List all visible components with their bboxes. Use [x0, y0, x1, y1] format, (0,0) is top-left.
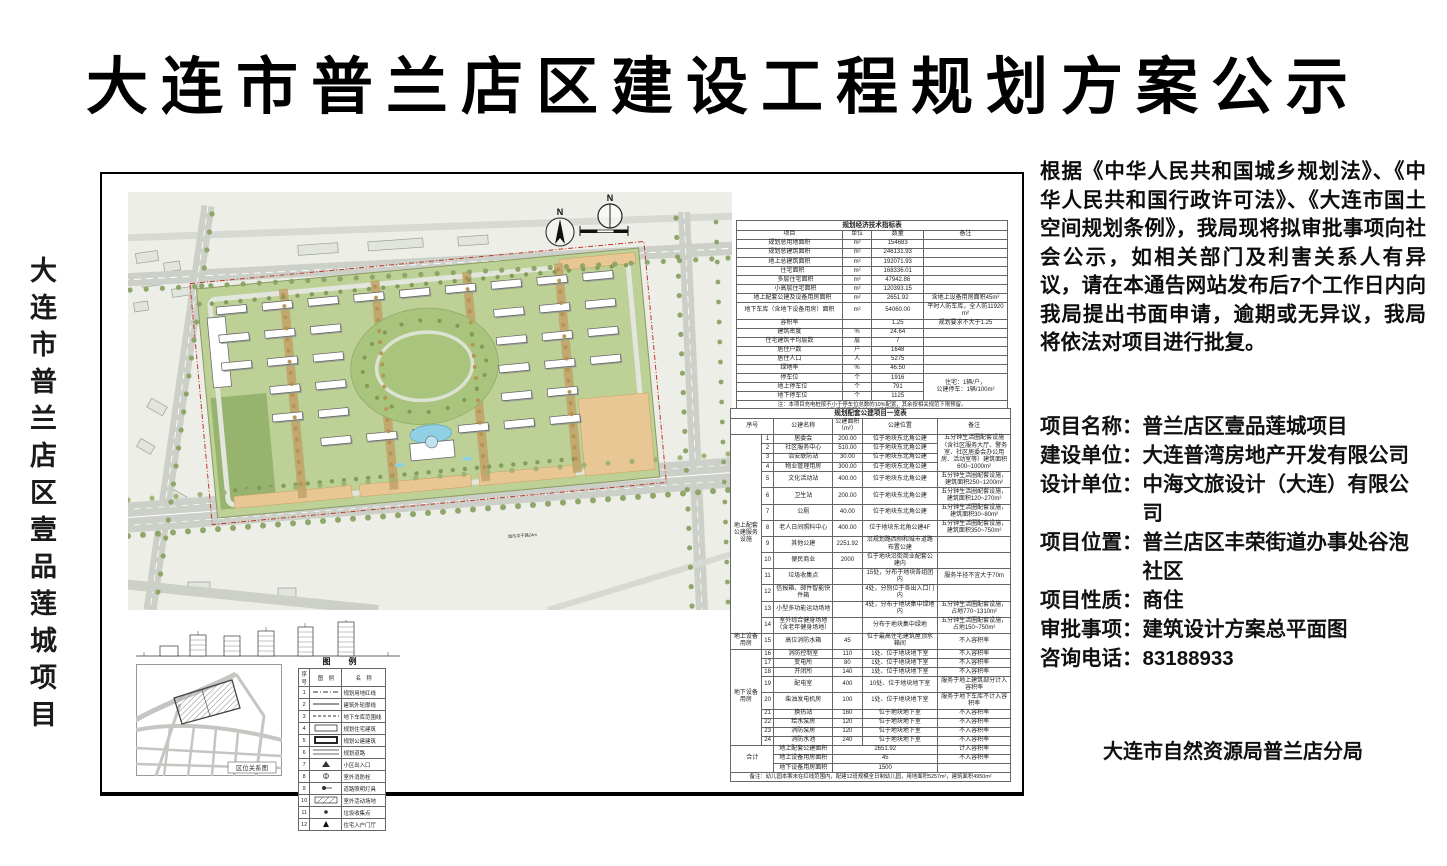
table-row: 23消防泵房120位于地块地下室不入容积率 [731, 727, 1011, 736]
north-label-2: N [557, 207, 564, 217]
table-note-row: 备注：幼儿园本案未在红线范围内，配建12班规模全日制幼儿园，用地面积5257m²… [731, 773, 1011, 781]
legend: 图 例 序号图 例名 称1规划用地红线2建筑外轮廓线3地下车库范围线4规划住宅建… [298, 656, 386, 831]
table-row: 11垃圾收集点15处，分布于地块各组团内服务半径不宜大于70m [731, 569, 1011, 585]
field-value: 83188933 [1143, 644, 1427, 673]
table-row: 6卫生站200.00位于地块东北角公建五分钟生活圈配套设施，建筑面积120~27… [731, 488, 1011, 504]
solid-symbol-icon [310, 699, 342, 711]
project-field-5: 审批事项：建筑设计方案总平面图 [1040, 615, 1426, 644]
legend-row: 10室外活动场地 [299, 795, 386, 807]
table-row: 地下设备用房16消防控制室1101处、位于地块地下室不入容积率 [731, 650, 1011, 659]
drawing-frame: N N 城市次干路24m [100, 172, 1024, 796]
project-side-label: 大连市普兰店区壹品莲城项目 [22, 256, 61, 737]
table-row: 20柴油发电机房1001处、位于地块地下室服务于地下车库不计入容积率 [731, 693, 1011, 709]
table-row: 居住人口人5275 [737, 355, 1008, 364]
table-row: 22给水泵房120位于地块地下室不入容积率 [731, 718, 1011, 727]
project-field-4: 项目性质：商住 [1040, 586, 1426, 615]
field-label: 设计单位： [1040, 470, 1143, 528]
road-symbol-icon [310, 747, 342, 759]
legend-row: 2建筑外轮廓线 [299, 699, 386, 711]
hatch-symbol-icon [310, 795, 342, 807]
notice-poster: 大连市普兰店区建设工程规划方案公示 大连市普兰店区壹品莲城项目 [0, 0, 1447, 866]
field-label: 项目名称： [1040, 412, 1143, 441]
table-row: 5文化活动站400.00位于地块东北角公建五分钟生活圈配套设施，建筑面积250~… [731, 472, 1011, 488]
legend-row: 5规划公建建筑 [299, 735, 386, 747]
table-row: 19配电室40010处、位于地块地下室服务于地上建筑部分计入容积率 [731, 677, 1011, 693]
table-row: 规划总用地面积m²154683 [737, 239, 1008, 248]
field-value: 中海文旅设计（大连）有限公司 [1143, 470, 1427, 528]
project-field-2: 设计单位：中海文旅设计（大连）有限公司 [1040, 470, 1426, 528]
table-row: 7公厕40.00位于地块东北角公建五分钟生活圈配套设施，建筑面积30~80m² [731, 504, 1011, 520]
table-total-row: 合计地上配套公建面积2651.92计入容积率 [731, 745, 1011, 754]
table-row: 8老人日间照料中心400.00位于地块东北角公建4F五分钟生活圈配套设施，建筑面… [731, 520, 1011, 536]
table-row: 24消防水池240位于地块地下室不入容积率 [731, 736, 1011, 745]
field-value: 普兰店区丰荣街道办事处谷泡社区 [1143, 528, 1427, 586]
map-caption: 区位关系图 [236, 763, 268, 772]
table-row: 地下车库（含地下设备用房）面积m²54060.00平时人防车库，全人防11920… [737, 303, 1008, 319]
legend-row: 4规划住宅建筑 [299, 723, 386, 735]
lamp-symbol-icon [310, 783, 342, 795]
table-row: 地上配套公建服务设施1居委会200.00位于地块东北角公建五分钟生活圈配套设施（… [731, 434, 1011, 443]
indicators-table: 规划经济技术指标表项目单位数量备注规划总用地面积m²154683规划总建筑面积m… [736, 220, 1008, 416]
dashdot-symbol-icon [310, 687, 342, 699]
table-header-row: 项目单位数量备注 [737, 230, 1008, 239]
field-label: 咨询电话： [1040, 644, 1143, 673]
section-buildings [160, 622, 354, 656]
table-title-row: 规划经济技术指标表 [737, 221, 1008, 231]
table-row: 10便民商业2000位于地块沿街商业配套公建内 [731, 553, 1011, 569]
res-symbol-icon [310, 723, 342, 735]
legend-row: 12住宅入户门厅 [299, 819, 386, 831]
field-label: 审批事项： [1040, 615, 1143, 644]
table-row: 地上总建筑面积m²192071.93 [737, 258, 1008, 267]
north-label: N [607, 193, 614, 203]
table-row: 14室外综合健身场地（含老年健身场地）分布于地块集中绿地五分钟生活圈配套设施，占… [731, 617, 1011, 633]
dot-symbol-icon [310, 807, 342, 819]
notice-paragraph: 根据《中华人民共和国城乡规划法》、《中华人民共和国行政许可法》、《大连市国土空间… [1040, 158, 1426, 358]
site-plan: N N 城市次干路24m [128, 192, 732, 610]
field-label: 项目位置： [1040, 528, 1143, 586]
project-field-0: 项目名称：普兰店区壹品莲城项目 [1040, 412, 1426, 441]
project-field-3: 项目位置：普兰店区丰荣街道办事处谷泡社区 [1040, 528, 1426, 586]
table-row: 17变电所801处、位于地块地下室不入容积率 [731, 659, 1011, 668]
project-field-1: 建设单位：大连普湾房地产开发有限公司 [1040, 441, 1426, 470]
entry-symbol-icon [310, 819, 342, 831]
legend-title: 图 例 [298, 656, 386, 667]
legend-row: 11垃圾收集点 [299, 807, 386, 819]
facilities-table: 规划配套公建项目一览表序号公建名称公建面积（m²）公建位置备注地上配套公建服务设… [730, 408, 1011, 782]
table-row: 18开闭所1401处、位于地块地下室不入容积率 [731, 668, 1011, 677]
field-label: 建设单位： [1040, 441, 1143, 470]
table-row: 21换热站160位于地块地下室不入容积率 [731, 709, 1011, 718]
table-row: 多层住宅面积m²47942.86 [737, 276, 1008, 285]
table-row: 9其他公建2251.92沿规划路西侧和城市道路布置公建 [731, 536, 1011, 552]
project-field-6: 咨询电话：83188933 [1040, 644, 1426, 673]
table-row: 住宅建筑平均层数层7 [737, 337, 1008, 346]
table-row: 地上配套公建及设备用房面积m²2651.92含地上设备用房面积45m² [737, 294, 1008, 303]
legend-row: 9道路照明灯具 [299, 783, 386, 795]
legend-row: 8室外消防栓 [299, 771, 386, 783]
page-title: 大连市普兰店区建设工程规划方案公示 [0, 36, 1447, 126]
table-row: 13小型多功能运动场地4处，分布于地块集中绿地内五分钟生活圈配套设施，占地770… [731, 601, 1011, 617]
table-row: 地上设备用房15高位消防水箱45位于最高住宅建筑屋顶水箱间不入容积率 [731, 633, 1011, 649]
authority-line: 大连市自然资源局普兰店分局 [1040, 735, 1426, 764]
arrow-symbol-icon [310, 759, 342, 771]
field-value: 商住 [1143, 586, 1427, 615]
legend-row: 6规划道路 [299, 747, 386, 759]
legend-row: 3地下车库范围线 [299, 711, 386, 723]
field-value: 大连普湾房地产开发有限公司 [1143, 441, 1427, 470]
table-row: 12信报箱、邮件智能快件箱4处，分别位于各出入口门内 [731, 585, 1011, 601]
table-row: 小高层住宅面积m²120393.15 [737, 285, 1008, 294]
dash-symbol-icon [310, 711, 342, 723]
table-row: 绿地率%46.50 [737, 364, 1008, 373]
legend-header-row: 序号图 例名 称 [299, 669, 386, 687]
legend-row: 1规划用地红线 [299, 687, 386, 699]
table-row: 规划总建筑面积m²246131.93 [737, 248, 1008, 257]
table-row: 容积率1.25规划要求不大于1.25 [737, 319, 1008, 328]
table-row: 住宅面积m²168336.01 [737, 267, 1008, 276]
table-row: 建筑密度%24.64 [737, 328, 1008, 337]
pub-symbol-icon [310, 735, 342, 747]
hydrant-symbol-icon [310, 771, 342, 783]
legend-table: 序号图 例名 称1规划用地红线2建筑外轮廓线3地下车库范围线4规划住宅建筑5规划… [298, 668, 386, 831]
field-value: 建筑设计方案总平面图 [1143, 615, 1427, 644]
legend-row: 7小区出入口 [299, 759, 386, 771]
table-row: 居住户数户1648 [737, 346, 1008, 355]
field-label: 项目性质： [1040, 586, 1143, 615]
table-title-row: 规划配套公建项目一览表 [731, 409, 1011, 419]
table-header-row: 序号公建名称公建面积（m²）公建位置备注 [731, 418, 1011, 434]
field-value: 普兰店区壹品莲城项目 [1143, 412, 1427, 441]
location-map: 区位关系图 [136, 664, 282, 776]
table-row: 停车位个1916住宅：1辆/户， 公建停车：1辆/100m² [737, 374, 1008, 383]
project-fields: 项目名称：普兰店区壹品莲城项目建设单位：大连普湾房地产开发有限公司设计单位：中海… [1040, 412, 1426, 673]
